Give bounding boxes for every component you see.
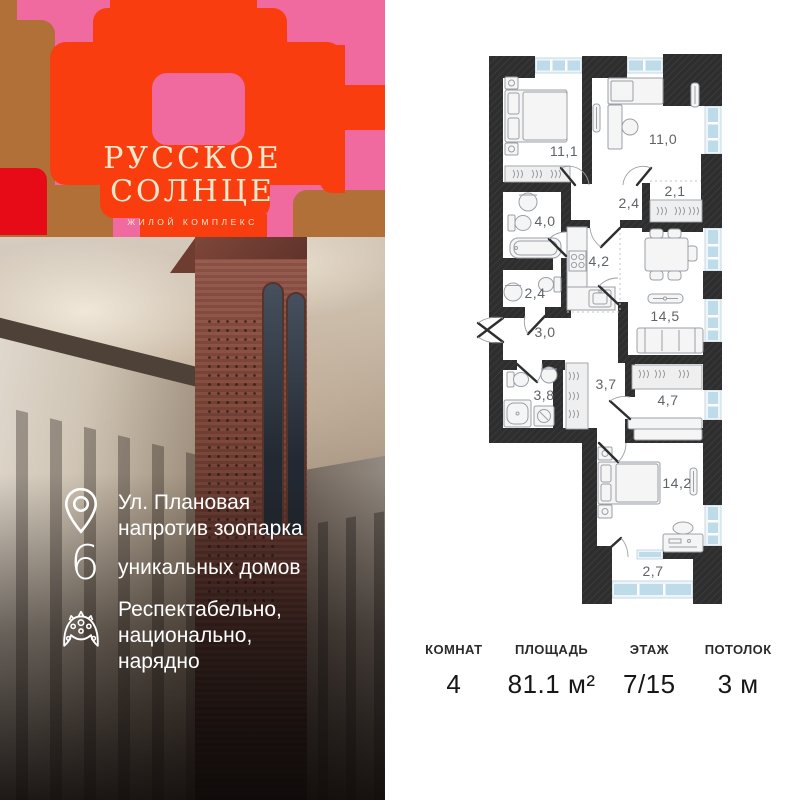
room-area-label: 14,5 (650, 308, 679, 324)
stat-label: ПЛОЩАДЬ (508, 642, 596, 657)
room-area-label: 4,0 (535, 213, 556, 229)
room-area-label: 3,7 (596, 376, 617, 392)
feature-location (62, 487, 100, 540)
stat-value: 4 (419, 669, 489, 700)
feature-style (58, 609, 104, 656)
room-area-label: 11,0 (649, 131, 677, 147)
stat-floor: ЭТАЖ 7/15 (614, 642, 684, 700)
stat-value: 7/15 (614, 669, 684, 700)
room-area-label: 4,2 (589, 253, 610, 269)
stat-rooms: КОМНАТ 4 (419, 642, 489, 700)
brand-title-line1: РУССКОЕ (0, 142, 385, 175)
room-area-label: 11,1 (550, 143, 578, 159)
room-area-label: 2,4 (525, 285, 546, 301)
room-area-label: 3,8 (534, 387, 555, 403)
room-area-label: 14,2 (662, 475, 691, 491)
stat-value: 81.1 м² (508, 669, 596, 700)
location-pin-icon (62, 487, 100, 535)
stat-value: 3 м (703, 669, 773, 700)
stat-label: КОМНАТ (419, 642, 489, 657)
feature-houses-text: уникальных домов (118, 555, 348, 581)
pattern-shape (152, 73, 245, 145)
feature-style-text: Респектабельно, национально, нарядно (118, 597, 303, 675)
brand-panel: РУССКОЕ СОЛНЦЕ ЖИЛОЙ КОМПЛЕКС Ул. Планов… (0, 0, 385, 800)
feature-location-text: Ул. Плановая напротив зоопарка (118, 490, 343, 542)
brand-title-line2: СОЛНЦЕ (0, 175, 385, 208)
stat-area: ПЛОЩАДЬ 81.1 м² (508, 642, 596, 700)
brand-logo: РУССКОЕ СОЛНЦЕ ЖИЛОЙ КОМПЛЕКС (0, 142, 385, 227)
room-area-label: 2,7 (643, 563, 664, 579)
room-area-label: 2,1 (665, 183, 686, 199)
room-area-label: 4,7 (658, 392, 679, 408)
room-area-label: 3,0 (535, 324, 556, 340)
digit-six: 6 (70, 542, 100, 586)
stat-label: ПОТОЛОК (703, 642, 773, 657)
stat-label: ЭТАЖ (614, 642, 684, 657)
kokoshnik-icon (58, 609, 104, 651)
stat-ceiling: ПОТОЛОК 3 м (703, 642, 773, 700)
pattern-shape (343, 85, 385, 130)
room-area-label: 2,4 (619, 195, 640, 211)
brand-header: РУССКОЕ СОЛНЦЕ ЖИЛОЙ КОМПЛЕКС (0, 0, 385, 237)
apartment-stats: КОМНАТ 4 ПЛОЩАДЬ 81.1 м² ЭТАЖ 7/15 ПОТОЛ… (400, 642, 792, 700)
brand-subtitle: ЖИЛОЙ КОМПЛЕКС (0, 217, 385, 227)
building-photo: Ул. Плановая напротив зоопарка 6 уникаль… (0, 237, 385, 800)
floor-plan: 11,1 11,0 2,1 2,4 4,0 4,2 2,4 14,5 3,0 3… (451, 52, 727, 624)
